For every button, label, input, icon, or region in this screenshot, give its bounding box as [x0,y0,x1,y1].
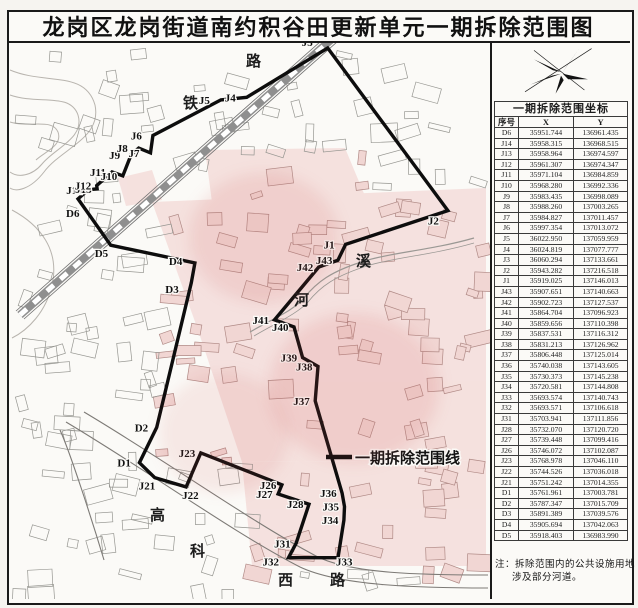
coordinate-row: J3335693.574137140.743 [495,392,628,403]
boundary-point-label-J3: J3 [302,43,314,49]
coordinate-cell: 35859.656 [519,318,574,329]
coordinate-cell: 35732.070 [519,424,574,435]
boundary-point-label-J7: J7 [129,148,141,160]
parcel [327,221,346,229]
boundary-point-label-J6: J6 [131,131,143,143]
coordinate-row: J2135751.242137014.355 [495,477,628,488]
parcel [190,323,202,335]
map-note: 注：拆除范围内的公共设施用地涉及部分河道。 [495,559,638,584]
coordinate-cell: 137046.110 [574,456,628,467]
parcel [300,473,309,486]
coordinate-cell: 36024.819 [519,244,574,255]
coordinate-row: J3735806.448137125.014 [495,350,628,361]
coordinate-cell: 35984.827 [519,212,574,223]
boundary-point-label-J28: J28 [287,499,304,511]
coordinate-panel: 一期拆除范围坐标 序号 X Y D635951.744136961.435J14… [490,43,630,599]
boundary-point-label-J41: J41 [253,315,270,327]
coordinate-cell: J36 [495,361,519,372]
parcel [408,318,429,336]
railway-label-char: 路 [246,52,262,70]
boundary-point-label-J35: J35 [323,502,340,514]
coordinate-row: J3835831.213137126.962 [495,339,628,350]
coordinate-row: J835988.260137003.265 [495,202,628,213]
coordinate-cell: J33 [495,392,519,403]
coordinate-table-title: 一期拆除范围坐标 [495,102,628,117]
coordinate-cell: 137014.355 [574,477,628,488]
coordinate-cell: 35988.260 [519,202,574,213]
parcel [337,325,352,339]
coordinate-cell: J7 [495,212,519,223]
parcel [176,358,195,365]
coordinate-cell: D5 [495,530,519,541]
boundary-point-label-J31: J31 [274,538,291,550]
coordinate-cell: 137133.661 [574,255,628,266]
coordinate-cell: 35740.038 [519,361,574,372]
coordinate-cell: 137127.537 [574,297,628,308]
parcel [339,345,359,355]
coordinate-cell: 35958.315 [519,138,574,149]
coordinate-cell: 137013.072 [574,223,628,234]
boundary-point-label-J37: J37 [293,396,310,408]
coordinate-row: J1235961.307136974.347 [495,159,628,170]
coordinate-row: J635997.354137013.072 [495,223,628,234]
coordinate-cell: 136974.597 [574,149,628,160]
coordinate-cell: 137116.312 [574,329,628,340]
coordinate-cell: J22 [495,467,519,478]
boundary-point-label-J10: J10 [101,171,118,183]
coordinate-cell: 136974.347 [574,159,628,170]
coordinate-cell: 35905.694 [519,519,574,530]
coordinate-cell: 136961.435 [574,128,628,139]
column-header-id: 序号 [495,117,519,128]
coordinate-row: J935983.435136998.089 [495,191,628,202]
coordinate-cell: 137077.777 [574,244,628,255]
parcel [383,525,393,538]
coordinate-cell: J38 [495,339,519,350]
map-area: D6J14J13J12J11J10J9J8J7J6J5J4J3J2J1J43J4… [9,43,490,599]
boundary-point-label-D6: D6 [66,208,80,220]
coordinate-cell: 137146.013 [574,276,628,287]
coordinate-row: J4035859.656137110.398 [495,318,628,329]
river-label-char: 溪 [356,252,372,270]
boundary-point-label-J4: J4 [225,92,237,104]
coordinate-row: J1035968.280136992.336 [495,180,628,191]
coordinate-cell: 137015.709 [574,498,628,509]
coordinate-cell: 136992.336 [574,180,628,191]
boundary-point-label-J5: J5 [199,95,211,107]
coordinate-row: J4135864.704137096.923 [495,308,628,319]
parcel [266,166,293,186]
coordinate-cell: J32 [495,403,519,414]
coordinate-cell: 137099.416 [574,435,628,446]
coordinate-cell: J11 [495,170,519,181]
coordinate-cell: J9 [495,191,519,202]
coordinate-cell: J8 [495,202,519,213]
parcel [426,547,446,560]
coordinate-cell: J5 [495,233,519,244]
parcel [336,313,348,323]
coordinate-row: D535918.403136983.990 [495,530,628,541]
coordinate-cell: J12 [495,159,519,170]
railway-label-char: 铁 [183,94,198,112]
coordinate-cell: D6 [495,128,519,139]
coordinate-cell: J23 [495,456,519,467]
coordinate-cell: J4 [495,244,519,255]
coordinate-cell: 137126.962 [574,339,628,350]
coordinate-cell: D1 [495,488,519,499]
parcel [156,449,169,457]
coordinate-cell: 35693.571 [519,403,574,414]
coordinate-row: D435905.694137042.063 [495,519,628,530]
boundary-point-label-J26: J26 [260,480,277,492]
coordinate-cell: 35864.704 [519,308,574,319]
coordinate-cell: J26 [495,445,519,456]
coordinate-cell: 136983.990 [574,530,628,541]
coordinate-row: J1335958.964136974.597 [495,149,628,160]
coordinate-cell: 35971.104 [519,170,574,181]
legend-label: 一期拆除范围线 [355,449,460,467]
coordinate-cell: J2 [495,265,519,276]
parcel [421,338,440,352]
coordinate-cell: 35744.526 [519,467,574,478]
coordinate-cell: 137003.265 [574,202,628,213]
coordinate-cell: 137042.063 [574,519,628,530]
coordinate-row: J4335907.651137140.663 [495,286,628,297]
boundary-point-label-J34: J34 [322,515,339,527]
coordinate-cell: 35739.448 [519,435,574,446]
map-title-bar: 龙岗区龙岗街道南约积谷田更新单元一期拆除范围图 [7,10,630,43]
coordinate-row: J436024.819137077.777 [495,244,628,255]
coordinate-row: J135919.025137146.013 [495,276,628,287]
coordinate-cell: 35720.581 [519,382,574,393]
coordinate-row: J3435720.581137144.808 [495,382,628,393]
boundary-point-label-J33: J33 [336,557,353,569]
map-title: 龙岗区龙岗街道南约积谷田更新单元一期拆除范围图 [42,10,594,42]
coordinate-row: J735984.827137011.457 [495,212,628,223]
coordinate-cell: 137110.398 [574,318,628,329]
coordinate-cell: 35891.389 [519,509,574,520]
coordinate-cell: 137125.014 [574,350,628,361]
coordinate-cell: 137102.087 [574,445,628,456]
cadastral-map: D6J14J13J12J11J10J9J8J7J6J5J4J3J2J1J43J4… [9,43,490,599]
parcel [278,549,286,558]
coordinate-cell: 137036.018 [574,467,628,478]
coordinate-cell: J1 [495,276,519,287]
parcel [247,213,269,232]
coordinate-row: J2335768.978137046.110 [495,456,628,467]
coordinate-row: D235787.347137015.709 [495,498,628,509]
coordinate-cell: 35902.723 [519,297,574,308]
coordinate-row: J1135971.104136984.859 [495,170,628,181]
parcel [467,554,490,572]
coordinate-cell: 137003.781 [574,488,628,499]
parcel [221,366,237,383]
boundary-point-label-J36: J36 [320,488,337,500]
coordinate-table-header: 序号 X Y [495,117,628,128]
coordinate-cell: 137011.457 [574,212,628,223]
coordinate-cell: J27 [495,435,519,446]
parcel [422,566,434,584]
coordinate-row: J3135703.941137111.856 [495,414,628,425]
boundary-point-label-D3: D3 [165,284,179,296]
coordinate-cell: 35768.978 [519,456,574,467]
boundary-point-label-J23: J23 [179,448,196,460]
coordinate-row: J3935837.531137116.312 [495,329,628,340]
coordinate-cell: 137059.959 [574,233,628,244]
coordinate-cell: 36022.950 [519,233,574,244]
coordinate-cell: 35918.403 [519,530,574,541]
coordinate-cell: 137140.663 [574,286,628,297]
coordinate-cell: 137096.923 [574,308,628,319]
parcel [400,201,420,216]
road-label-char: 高 [150,506,165,524]
coordinate-cell: 35951.744 [519,128,574,139]
coordinate-cell: J37 [495,350,519,361]
coordinate-row: D635951.744136961.435 [495,128,628,139]
parcel [187,365,210,383]
boundary-point-label-D5: D5 [95,248,109,260]
coordinate-cell: J41 [495,308,519,319]
coordinate-row: D335891.389137039.576 [495,509,628,520]
boundary-point-label-J8: J8 [117,143,129,155]
road-label-char: 科 [190,542,205,560]
coordinate-cell: 35787.347 [519,498,574,509]
coordinate-cell: 137039.576 [574,509,628,520]
coordinate-cell: 137140.743 [574,392,628,403]
coordinate-cell: 35831.213 [519,339,574,350]
coordinate-cell: J35 [495,371,519,382]
parcel [468,459,486,473]
parcel [358,150,367,165]
parcel [427,377,443,391]
parcel [175,345,201,355]
parcel [355,181,369,190]
road-label-char: 路 [330,571,346,589]
coordinate-cell: 137144.808 [574,382,628,393]
boundary-point-label-D4: D4 [169,256,183,268]
boundary-point-label-D1: D1 [117,458,130,470]
coordinate-cell: J13 [495,149,519,160]
coordinate-cell: 35958.964 [519,149,574,160]
parcel [293,232,312,244]
coordinate-row: J336060.294137133.661 [495,255,628,266]
road-label-char: 西 [278,572,293,589]
coordinate-cell: 137143.605 [574,361,628,372]
coordinate-row: J3635740.038137143.605 [495,361,628,372]
coordinate-cell: 137106.618 [574,403,628,414]
coordinate-cell: 137111.856 [574,414,628,425]
coordinate-cell: J28 [495,424,519,435]
coordinate-row: J536022.950137059.959 [495,233,628,244]
coordinate-cell: 35703.941 [519,414,574,425]
coordinate-cell: J3 [495,255,519,266]
compass-box [492,43,630,101]
coordinate-cell: 35746.072 [519,445,574,456]
coordinate-cell: J40 [495,318,519,329]
boundary-point-label-J12: J12 [75,181,92,193]
coordinate-cell: 35997.354 [519,223,574,234]
boundary-point-label-J1: J1 [324,239,335,251]
coordinate-cell: 35837.531 [519,329,574,340]
coordinate-cell: 136998.089 [574,191,628,202]
parcel [207,212,222,225]
coordinate-cell: 35919.025 [519,276,574,287]
coordinate-cell: 35907.651 [519,286,574,297]
coordinate-cell: 35730.373 [519,371,574,382]
parcel [474,272,490,292]
coordinate-cell: 136968.515 [574,138,628,149]
column-header-y: Y [574,117,628,128]
boundary-point-label-J2: J2 [428,216,440,228]
parcel [425,508,446,519]
coordinate-cell: J43 [495,286,519,297]
parcel [268,379,294,399]
coordinate-cell: J14 [495,138,519,149]
coordinate-cell: 136984.859 [574,170,628,181]
coordinate-row: J2735739.448137099.416 [495,435,628,446]
coordinate-cell: D2 [495,498,519,509]
coordinate-row: J1435958.315136968.515 [495,138,628,149]
boundary-point-label-J21: J21 [139,481,156,493]
column-header-x: X [519,117,574,128]
coordinate-row: J4235902.723137127.537 [495,297,628,308]
coordinate-cell: J39 [495,329,519,340]
demolition-scope-map-sheet: 龙岗区龙岗街道南约积谷田更新单元一期拆除范围图 [0,0,638,608]
coordinate-cell: 35968.280 [519,180,574,191]
river-label-char: 河 [294,291,309,309]
boundary-point-label-J32: J32 [263,557,280,569]
coordinate-cell: J34 [495,382,519,393]
boundary-point-label-J22: J22 [182,490,199,502]
parcel [268,274,288,285]
coordinate-cell: 35751.242 [519,477,574,488]
boundary-point-label-J42: J42 [297,262,314,274]
coordinate-cell: 35761.961 [519,488,574,499]
coordinate-table-block: 一期拆除范围坐标 序号 X Y D635951.744136961.435J14… [494,101,627,541]
coordinate-cell: 36060.294 [519,255,574,266]
north-arrow-icon [516,45,606,99]
coordinate-cell: 35961.307 [519,159,574,170]
coordinate-cell: 35693.574 [519,392,574,403]
coordinate-cell: 35943.282 [519,265,574,276]
coordinate-row: J2835732.070137120.720 [495,424,628,435]
coordinate-cell: 137145.238 [574,371,628,382]
coordinate-cell: 137216.518 [574,265,628,276]
coordinate-row: J235943.282137216.518 [495,265,628,276]
coordinate-cell: J21 [495,477,519,488]
coordinate-cell: J42 [495,297,519,308]
coordinate-row: J3535730.373137145.238 [495,371,628,382]
coordinate-cell: J31 [495,414,519,425]
coordinate-row: J2235744.526137036.018 [495,467,628,478]
coordinate-table: 一期拆除范围坐标 序号 X Y D635951.744136961.435J14… [494,101,628,541]
coordinate-cell: 137120.720 [574,424,628,435]
boundary-point-label-J40: J40 [272,322,289,334]
boundary-point-label-J38: J38 [296,361,313,373]
coordinate-cell: 35983.435 [519,191,574,202]
coordinate-cell: D4 [495,519,519,530]
coordinate-row: J2635746.072137102.087 [495,445,628,456]
coordinate-row: J3235693.571137106.618 [495,403,628,414]
coordinate-cell: 35806.448 [519,350,574,361]
boundary-point-label-J43: J43 [316,255,333,267]
parcel [423,489,445,507]
boundary-point-label-D2: D2 [135,422,149,434]
coordinate-cell: D3 [495,509,519,520]
coordinate-row: D135761.961137003.781 [495,488,628,499]
coordinate-cell: J10 [495,180,519,191]
coordinate-cell: J6 [495,223,519,234]
